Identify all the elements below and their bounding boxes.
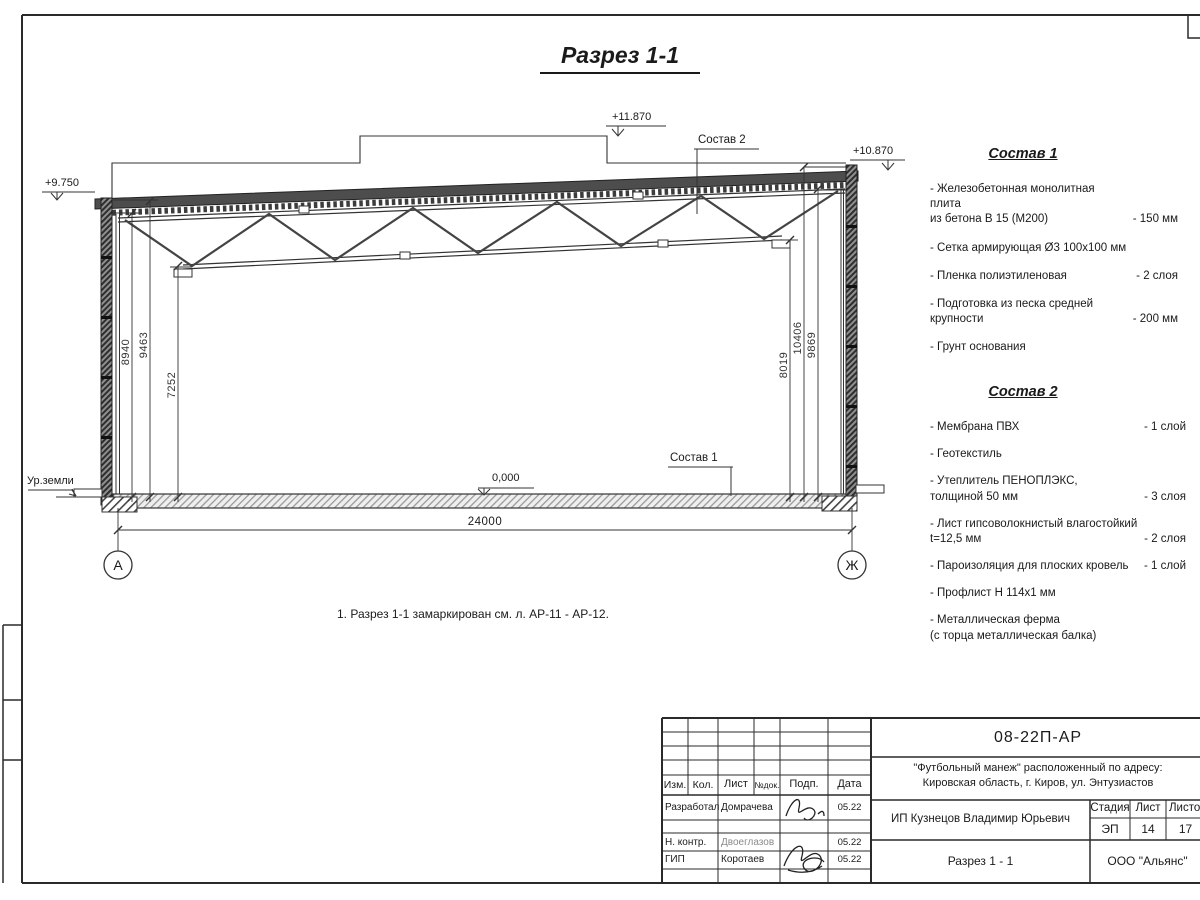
- item-qty: - 3 слоя: [1138, 490, 1186, 505]
- tb-role-ncontrol: Н. контр.: [665, 836, 718, 849]
- axis-bubble-right: Ж: [838, 557, 866, 573]
- leader-label-comp2: Состав 2: [698, 134, 746, 147]
- tb-sheet-label: Лист: [1130, 801, 1166, 817]
- item-text: - Железобетонная монолитная плита из бет…: [930, 182, 1127, 228]
- comp2-title: Состав 2: [958, 384, 1088, 400]
- elevation-mark-box: +11.870: [612, 111, 651, 123]
- item-text: - Металлическая ферма (с торца металличе…: [930, 613, 1096, 643]
- dim-left-7252: 7252: [166, 345, 178, 425]
- list-item: - Металлическая ферма (с торца металличе…: [930, 613, 1186, 643]
- ground-level-label: Ур.земли: [27, 475, 74, 487]
- elevation-mark-floor: 0,000: [492, 472, 520, 484]
- tb-header-data: Дата: [828, 776, 871, 794]
- tb-role-gip: ГИП: [665, 853, 718, 867]
- left-wall: [101, 198, 120, 505]
- list-item: - Мембрана ПВХ - 1 слой: [930, 420, 1186, 435]
- drawing-note: 1. Разрез 1-1 замаркирован см. л. АР-11 …: [337, 607, 609, 621]
- signatures: [784, 800, 824, 873]
- item-qty: - 2 слоя: [1130, 269, 1178, 284]
- list-item: - Пароизоляция для плоских кровель - 1 с…: [930, 559, 1186, 574]
- tb-date-gip: 05.22: [828, 853, 871, 867]
- item-text: - Лист гипсоволокнистый влагостойкий t=1…: [930, 517, 1137, 547]
- item-qty: - 1 слой: [1138, 559, 1186, 574]
- elevation-mark-right: +10.870: [853, 145, 893, 157]
- list-item: - Геотекстиль: [930, 447, 1186, 462]
- comp1-list: - Железобетонная монолитная плита из бет…: [930, 182, 1178, 355]
- tb-name-developer: Домрачева: [721, 801, 779, 815]
- item-qty: - 150 мм: [1127, 212, 1178, 227]
- right-wall: [841, 165, 857, 505]
- tb-stage-value: ЭП: [1090, 818, 1130, 840]
- tb-header-kol: Кол.: [688, 776, 718, 794]
- tb-drawing-name: Разрез 1 - 1: [871, 840, 1090, 883]
- dim-right-9869: 9869: [806, 305, 818, 385]
- signature-developer: [786, 800, 824, 820]
- item-qty: - 200 мм: [1127, 312, 1178, 327]
- tb-sheets-value: 17: [1166, 818, 1200, 840]
- list-item: - Железобетонная монолитная плита из бет…: [930, 182, 1178, 228]
- tb-project-line1: "Футбольный манеж" расположенный по адре…: [876, 761, 1200, 777]
- axis-bubble-left: А: [104, 557, 132, 573]
- tb-project-line2: Кировская область, г. Киров, ул. Энтузиа…: [876, 776, 1200, 792]
- tb-company: ООО "Альянс": [1090, 840, 1200, 883]
- list-item: - Профлист Н 114х1 мм: [930, 586, 1186, 601]
- tb-doc-number: 08-22П-АР: [871, 722, 1200, 754]
- tb-name-gip: Коротаев: [721, 853, 779, 867]
- tb-sheets-label: Листов: [1169, 801, 1200, 817]
- floor-slab: [56, 485, 884, 512]
- leader-label-comp1: Состав 1: [670, 452, 718, 465]
- item-qty: - 1 слой: [1138, 420, 1186, 435]
- dim-left-9463: 9463: [138, 305, 150, 385]
- tb-header-izm: Изм.: [662, 776, 688, 794]
- item-text: - Мембрана ПВХ: [930, 420, 1019, 435]
- tb-date-developer: 05.22: [828, 801, 871, 815]
- item-text: - Пленка полиэтиленовая: [930, 269, 1067, 284]
- tb-header-podp: Подп.: [780, 776, 828, 794]
- comp1-title: Состав 1: [958, 146, 1088, 162]
- tb-client: ИП Кузнецов Владимир Юрьевич: [871, 800, 1090, 840]
- item-qty: - 2 слоя: [1138, 532, 1186, 547]
- dim-right-10406: 10406: [792, 298, 804, 378]
- elevation-mark-left: +9.750: [45, 177, 79, 189]
- item-text: - Пароизоляция для плоских кровель: [930, 559, 1129, 574]
- comp2-list: - Мембрана ПВХ - 1 слой - Геотекстиль - …: [930, 420, 1186, 644]
- drawing-view-title: Разрез 1-1: [540, 42, 700, 74]
- dim-span: 24000: [445, 516, 525, 529]
- dim-right-8019: 8019: [778, 325, 790, 405]
- list-item: - Пленка полиэтиленовая - 2 слоя: [930, 269, 1178, 284]
- item-text: - Утеплитель ПЕНОПЛЭКС, толщиной 50 мм: [930, 474, 1078, 504]
- item-text: - Геотекстиль: [930, 447, 1002, 462]
- tb-role-developer: Разработал: [665, 801, 718, 815]
- roof: [95, 171, 858, 213]
- list-item: - Утеплитель ПЕНОПЛЭКС, толщиной 50 мм -…: [930, 474, 1186, 504]
- tb-header-ndok: №док.: [754, 776, 780, 794]
- dim-left-8940: 8940: [120, 312, 132, 392]
- item-text: - Профлист Н 114х1 мм: [930, 586, 1056, 601]
- tb-name-ncontrol: Двоеглазов: [721, 836, 779, 849]
- list-item: - Грунт основания: [930, 340, 1178, 355]
- tb-header-list: Лист: [718, 776, 754, 794]
- drawing-sheet: Разрез 1-1 +11.870 +10.870 +9.750 0,000 …: [0, 0, 1200, 900]
- item-text: - Грунт основания: [930, 340, 1026, 355]
- list-item: - Сетка армирующая Ø3 100х100 мм: [930, 241, 1178, 256]
- list-item: - Лист гипсоволокнистый влагостойкий t=1…: [930, 517, 1186, 547]
- item-text: - Подготовка из песка средней крупности: [930, 297, 1093, 327]
- tb-sheet-value: 14: [1130, 818, 1166, 840]
- list-item: - Подготовка из песка средней крупности …: [930, 297, 1178, 327]
- signature-gip: [784, 846, 824, 872]
- tb-stage-label: Стадия: [1090, 801, 1130, 817]
- item-text: - Сетка армирующая Ø3 100х100 мм: [930, 241, 1126, 256]
- tb-date-ncontrol: 05.22: [828, 836, 871, 849]
